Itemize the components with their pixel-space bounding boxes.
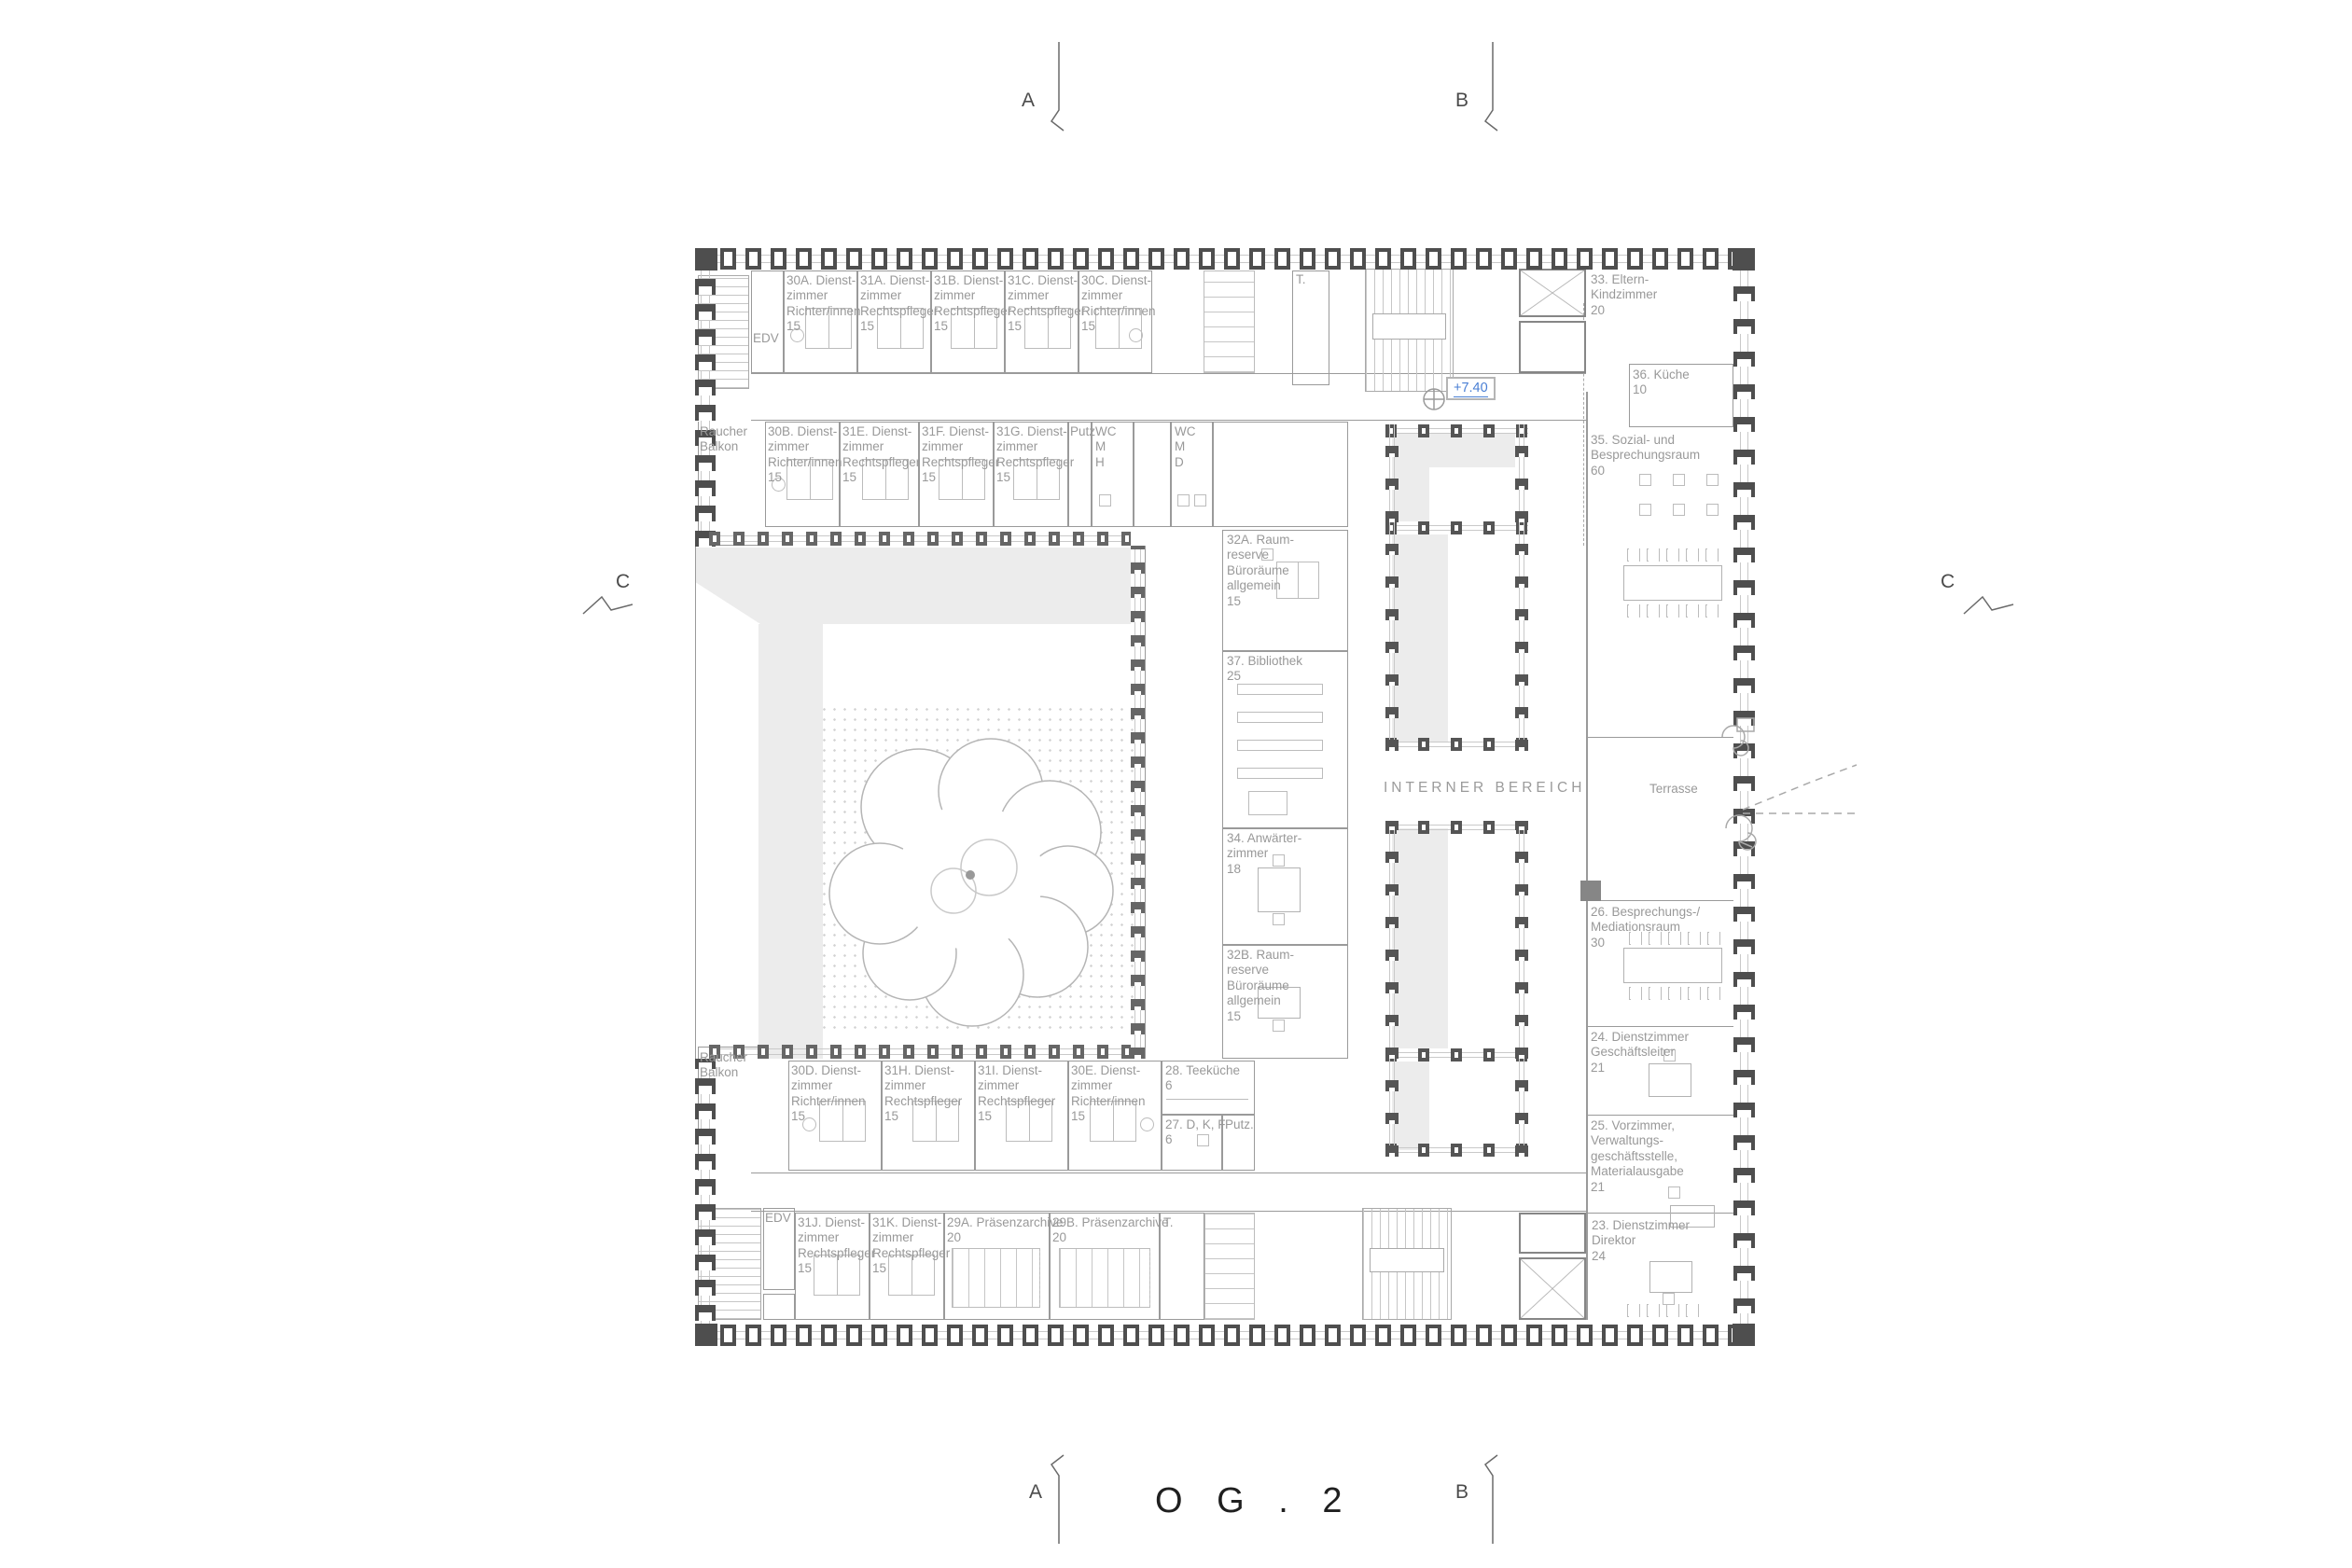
- room-30e-label: 30E. Dienst- zimmer Richter/innen 15: [1071, 1063, 1146, 1125]
- room-33-label: 33. Eltern- Kindzimmer 20: [1591, 272, 1657, 318]
- archive-shelving: [952, 1248, 1040, 1308]
- conference-table: [1623, 565, 1722, 601]
- room-divider: [1586, 737, 1733, 738]
- room-t-top-label: T.: [1296, 272, 1306, 287]
- section-marker-b-top: B: [1455, 90, 1468, 112]
- colonnade-columns: [1385, 1144, 1528, 1157]
- room-divider: [1586, 900, 1733, 901]
- room-25-label: 25. Vorzimmer, Verwaltungs- geschäftsste…: [1591, 1118, 1684, 1195]
- chair-row: [1627, 604, 1719, 617]
- balcony-raucher-top-label: Raucher Balkon: [700, 424, 747, 455]
- facade-east: [1733, 248, 1755, 1346]
- courtyard-shade-band: [695, 548, 1131, 624]
- room-31a-label: 31A. Dienst- zimmer Rechtspfleger 15: [860, 273, 938, 335]
- wc-fixture: [1099, 494, 1111, 506]
- interner-bereich-label: INTERNER BEREICH: [1384, 780, 1585, 797]
- room-30a-label: 30A. Dienst- zimmer Richter/innen 15: [786, 273, 861, 335]
- bookshelf: [1237, 768, 1323, 779]
- facade-west-bottom: [695, 1059, 716, 1346]
- colonnade-columns: [1515, 821, 1528, 1157]
- room-t-bottom-label: T.: [1163, 1215, 1174, 1230]
- room-31j-label: 31J. Dienst- zimmer Rechtspfleger 15: [798, 1215, 875, 1277]
- room-28-label: 28. Teeküche 6: [1165, 1063, 1240, 1094]
- colonnade-columns: [1515, 424, 1528, 751]
- corridor-line: [751, 373, 1586, 374]
- section-marker-a-top: A: [1022, 90, 1035, 112]
- colonnade-columns: [1385, 424, 1528, 437]
- courtyard-facade-north: [709, 532, 1131, 546]
- bookshelf: [1237, 740, 1323, 751]
- cabinet-row: [1627, 1304, 1705, 1317]
- level-marker-icon: [1424, 389, 1444, 409]
- room-31i-label: 31I. Dienst- zimmer Rechtspfleger 15: [978, 1063, 1055, 1125]
- room-31k-label: 31K. Dienst- zimmer Rechtspfleger 15: [872, 1215, 950, 1277]
- wc-fixture: [1194, 494, 1206, 506]
- room-31h-label: 31H. Dienst- zimmer Rechtspfleger 15: [884, 1063, 962, 1125]
- chair-icon: [1706, 504, 1719, 516]
- archive-shelving: [1059, 1248, 1150, 1308]
- terrasse-label: Terrasse: [1649, 782, 1698, 797]
- bookshelf: [1237, 712, 1323, 723]
- room-35-label: 35. Sozial- und Besprechungsraum 60: [1591, 433, 1700, 479]
- elevation-value: +7.40: [1454, 381, 1488, 397]
- chair-icon: [1273, 913, 1285, 925]
- facade-south: [695, 1325, 1755, 1346]
- room-30d-label: 30D. Dienst- zimmer Richter/innen 15: [791, 1063, 866, 1125]
- wc-fixture: [1177, 494, 1190, 506]
- courtyard-facade-south: [709, 1045, 1131, 1059]
- room-putz-top-label: Putz: [1070, 424, 1095, 439]
- chair-row: [1627, 548, 1719, 562]
- room-31e-label: 31E. Dienst- zimmer Rechtspfleger 15: [842, 424, 920, 486]
- corridor-line: [751, 1173, 1586, 1173]
- colonnade-columns: [1385, 738, 1528, 751]
- room-36-label: 36. Küche 10: [1633, 368, 1690, 398]
- room-29b-label: 29B. Präsenzarchive 20: [1052, 1215, 1169, 1246]
- room-edv-top: [751, 271, 784, 373]
- drawing-title: O G . 2: [1155, 1481, 1354, 1521]
- corner-nw: [695, 248, 717, 271]
- facade-west-top: [695, 248, 716, 547]
- room-32a-label: 32A. Raum- reserve Büroräume allgemein 1…: [1227, 533, 1294, 609]
- room-putz-bottom-label: Putz.: [1225, 1117, 1254, 1132]
- chair-icon: [1639, 504, 1651, 516]
- colonnade-columns: [1385, 821, 1528, 834]
- room-wc-md-label: WC M D: [1175, 424, 1196, 470]
- room-30b-label: 30B. Dienst- zimmer Richter/innen 15: [768, 424, 842, 486]
- balcony-raucher-bottom-label: Raucher Balkon: [700, 1050, 747, 1081]
- storage-shelves: [1204, 1213, 1255, 1320]
- facade-north: [695, 248, 1755, 270]
- storage-shelves: [1204, 271, 1255, 373]
- desk-icon: [1649, 1261, 1692, 1293]
- corner-sw: [695, 1324, 717, 1346]
- colonnade-columns: [1385, 1048, 1528, 1062]
- room-divider: [1586, 1026, 1733, 1027]
- corridor-line: [751, 1211, 1586, 1212]
- courtyard-facade-east: [1131, 546, 1145, 1059]
- chair-row: [1629, 987, 1720, 1000]
- corridor-line: [751, 420, 1586, 421]
- section-marker-b-bottom: B: [1455, 1481, 1468, 1504]
- chair-icon: [1706, 474, 1719, 486]
- room-edv-bottom-label: EDV: [765, 1211, 791, 1226]
- section-marker-a-bottom: A: [1029, 1481, 1042, 1504]
- wc-anteroom: [1213, 422, 1348, 527]
- elevator-south: [1519, 1257, 1586, 1320]
- colonnade-shade: [1392, 828, 1448, 1048]
- bookshelf: [1237, 684, 1323, 695]
- room-31g-label: 31G. Dienst- zimmer Rechtspfleger 15: [996, 424, 1074, 486]
- room-31b-label: 31B. Dienst- zimmer Rechtspfleger 15: [934, 273, 1011, 335]
- dashed-leaders: [1743, 765, 1857, 813]
- room-divider: [1586, 1115, 1733, 1116]
- corridor-line: [1145, 546, 1146, 1059]
- room-30c-label: 30C. Dienst- zimmer Richter/innen 15: [1081, 273, 1156, 335]
- room-29a-label: 29A. Präsenzarchive 20: [947, 1215, 1064, 1246]
- room-edv-top-label: EDV: [753, 331, 779, 346]
- colonnade-shade: [1392, 434, 1515, 467]
- room-37-label: 37. Bibliothek 25: [1227, 654, 1302, 685]
- corner-se: [1733, 1324, 1755, 1346]
- corner-ne: [1733, 248, 1755, 271]
- room-34-label: 34. Anwärter- zimmer 18: [1227, 831, 1301, 877]
- courtyard-shade-strip: [758, 624, 823, 1059]
- colonnade-columns: [1385, 424, 1399, 751]
- courtyard-ground-texture: [819, 704, 1136, 1035]
- conference-table: [1623, 948, 1722, 983]
- elevator-shaft-north: [1519, 321, 1586, 373]
- service-box: [763, 1294, 795, 1320]
- stair-landing: [1370, 1248, 1444, 1272]
- room-32b-label: 32B. Raum- reserve Büroräume allgemein 1…: [1227, 948, 1294, 1024]
- chair-icon: [1673, 504, 1685, 516]
- courtyard-west-edge: [695, 547, 696, 1059]
- stair-landing: [1372, 313, 1446, 340]
- section-marker-c-right: C: [1941, 571, 1955, 593]
- colonnade-columns: [1385, 521, 1528, 534]
- east-wing-wall: [1586, 392, 1588, 1320]
- room-wc-mh-label: WC M H: [1095, 424, 1117, 470]
- room-24-label: 24. Dienstzimmer Geschäftsleiter 21: [1591, 1030, 1689, 1075]
- section-marker-c-left: C: [616, 571, 630, 593]
- terrace-column: [1580, 881, 1601, 901]
- reading-desk: [1248, 791, 1287, 815]
- colonnade-columns: [1385, 821, 1399, 1157]
- elevation-marker: +7.40: [1446, 377, 1496, 400]
- room-27-label: 27. D, K, F 6: [1165, 1117, 1226, 1148]
- colonnade-shade: [1392, 534, 1448, 742]
- elevator-shaft-south: [1519, 1213, 1586, 1254]
- room-31f-label: 31F. Dienst- zimmer Rechtspfleger 15: [922, 424, 999, 486]
- elevator-north: [1519, 269, 1586, 317]
- room-23-label: 23. Dienstzimmer Direktor 24: [1592, 1218, 1690, 1264]
- room-26-label: 26. Besprechungs-/ Mediationsraum 30: [1591, 905, 1700, 951]
- shaft-mid: [1134, 422, 1171, 527]
- floor-plan-canvas: EDV 30A. Dienst- zimmer Richter/innen 15…: [0, 0, 2352, 1568]
- room-31c-label: 31C. Dienst- zimmer Rechtspfleger 15: [1008, 273, 1085, 335]
